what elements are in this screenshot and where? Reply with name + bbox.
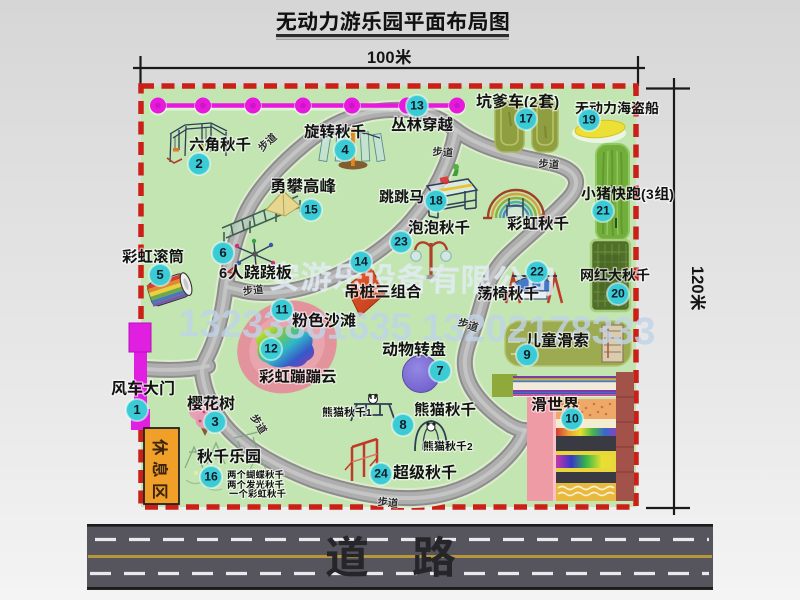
svg-text:19: 19 [582, 113, 596, 127]
svg-text:): ) [554, 95, 559, 111]
svg-text:15: 15 [304, 203, 318, 217]
svg-text:): ) [669, 187, 674, 202]
svg-text:100: 100 [367, 49, 395, 67]
svg-text:5: 5 [156, 267, 163, 282]
svg-text:14: 14 [354, 255, 368, 269]
svg-text:12: 12 [264, 342, 278, 356]
svg-text:7: 7 [436, 363, 443, 378]
svg-text:9: 9 [523, 347, 530, 362]
svg-text:8: 8 [399, 417, 406, 432]
svg-text:11: 11 [276, 303, 289, 317]
svg-text:3: 3 [211, 414, 218, 429]
svg-text:18: 18 [429, 194, 443, 208]
svg-text:21: 21 [596, 204, 610, 218]
svg-text:120: 120 [688, 266, 706, 294]
svg-text:24: 24 [374, 467, 388, 481]
svg-text:6: 6 [219, 266, 227, 282]
svg-text:1: 1 [133, 402, 140, 417]
svg-text:1: 1 [366, 408, 372, 419]
svg-text:16: 16 [204, 470, 218, 484]
svg-text:20: 20 [611, 287, 625, 301]
svg-text:22: 22 [530, 265, 544, 279]
svg-text:2: 2 [467, 442, 473, 453]
svg-text:13: 13 [410, 99, 424, 113]
svg-text:2: 2 [195, 156, 202, 171]
svg-text:3: 3 [646, 187, 654, 202]
svg-text:10: 10 [565, 412, 579, 426]
svg-text:17: 17 [519, 112, 533, 126]
svg-text:6: 6 [219, 245, 226, 260]
svg-text:4: 4 [341, 142, 349, 157]
svg-text:23: 23 [394, 235, 408, 249]
